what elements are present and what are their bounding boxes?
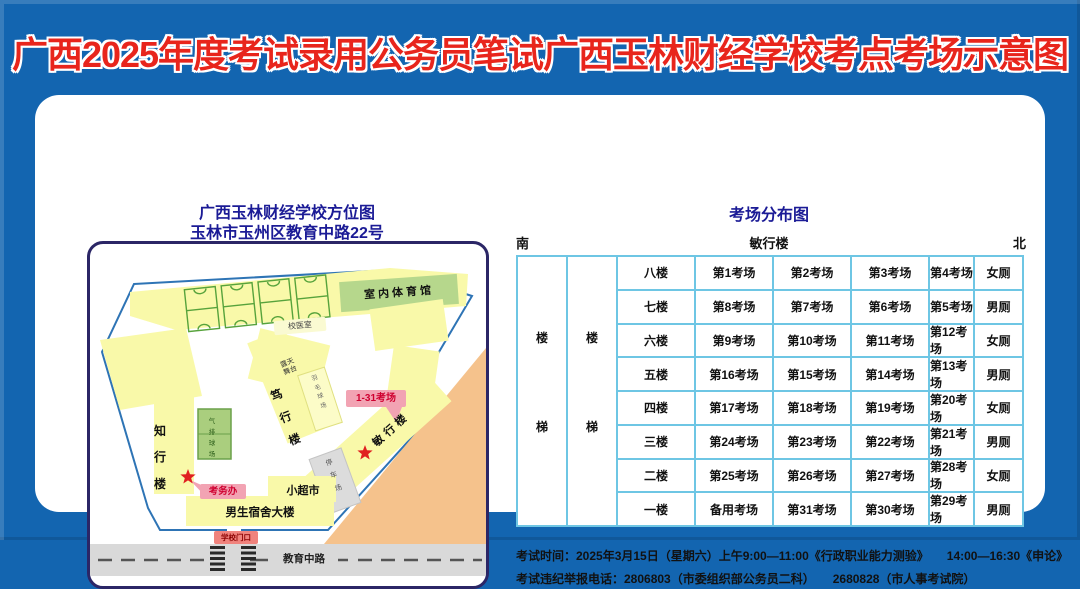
room-cell: 第16考场: [694, 356, 772, 390]
room-cell: 第5考场: [928, 289, 973, 323]
toilet-cell: 女厕: [973, 323, 1022, 357]
toilet-cell: 男厕: [973, 491, 1022, 525]
floor-cell: 五楼: [616, 356, 694, 390]
exam-office-label: 考务办: [200, 484, 246, 499]
room-cell: 第22考场: [850, 424, 928, 458]
floor-cell: 一楼: [616, 491, 694, 525]
room-cell: 第15考场: [772, 356, 850, 390]
room-cell: 第14考场: [850, 356, 928, 390]
room-cell: 第13考场: [928, 356, 973, 390]
room-cell: 第11考场: [850, 323, 928, 357]
room-cell: 第1考场: [694, 255, 772, 289]
content-panel: 广西玉林财经学校方位图 玉林市玉州区教育中路22号: [35, 95, 1045, 512]
room-cell: 第17考场: [694, 390, 772, 424]
room-cell: 第18考场: [772, 390, 850, 424]
toilet-cell: 男厕: [973, 424, 1022, 458]
north-label: 北: [1013, 233, 1026, 252]
stair-label-bottom: 梯: [518, 418, 566, 435]
room-cell: 第28考场: [928, 458, 973, 492]
floor-cell: 二楼: [616, 458, 694, 492]
room-cell: 第25考场: [694, 458, 772, 492]
room-cell: 第27考场: [850, 458, 928, 492]
room-cell: 第20考场: [928, 390, 973, 424]
toilet-cell: 女厕: [973, 390, 1022, 424]
toilet-cell: 女厕: [973, 255, 1022, 289]
school-gate-label: 学校门口: [214, 531, 258, 544]
room-cell: 第4考场: [928, 255, 973, 289]
road-name-label: 教育中路: [272, 551, 336, 566]
dorm-label: 男生宿舍大楼: [186, 504, 334, 520]
room-cell: 第12考场: [928, 323, 973, 357]
room-cell: 第24考场: [694, 424, 772, 458]
room-cell: 第19考场: [850, 390, 928, 424]
room-cell: 第2考场: [772, 255, 850, 289]
room-cell: 第31考场: [772, 491, 850, 525]
room-cell: 第8考场: [694, 289, 772, 323]
rooms-table: 八楼 楼 梯 第1考场 第2考场 第3考场 第4考场 女厕 楼 梯 七楼 第8考…: [516, 255, 1024, 527]
room-cell: 第21考场: [928, 424, 973, 458]
stair-label-bottom: 梯: [568, 418, 616, 435]
building-name-label: 敏行楼: [516, 233, 1022, 252]
floor-cell: 四楼: [616, 390, 694, 424]
room-cell: 第23考场: [772, 424, 850, 458]
page-title: 广西2025年度考试录用公务员笔试广西玉林财经学校考点考场示意图: [0, 26, 1080, 78]
rooms-range-label: 1-31考场: [346, 390, 406, 407]
table-title: 考场分布图: [515, 201, 1023, 225]
room-cell: 第10考场: [772, 323, 850, 357]
stair-label-top: 楼: [568, 329, 616, 346]
map-title-line2: 玉林市玉州区教育中路22号: [87, 219, 487, 243]
campus-map: 室内体育馆 校医室 知行楼 气排球场 笃行楼 露天舞台 羽毛球场 敏行楼 1-3…: [87, 241, 489, 589]
floor-cell: 八楼: [616, 255, 694, 289]
floor-cell: 七楼: [616, 289, 694, 323]
room-cell: 备用考场: [694, 491, 772, 525]
toilet-cell: 女厕: [973, 458, 1022, 492]
room-cell: 第26考场: [772, 458, 850, 492]
right-stair-cell: 楼 梯: [566, 255, 616, 525]
room-cell: 第3考场: [850, 255, 928, 289]
floor-cell: 六楼: [616, 323, 694, 357]
left-stair-cell: 楼 梯: [516, 255, 566, 525]
room-cell: 第6考场: [850, 289, 928, 323]
supermarket-label: 小超市: [270, 482, 336, 498]
room-cell: 第30考场: [850, 491, 928, 525]
toilet-cell: 男厕: [973, 356, 1022, 390]
room-cell: 第29考场: [928, 491, 973, 525]
room-cell: 第9考场: [694, 323, 772, 357]
floor-cell: 三楼: [616, 424, 694, 458]
room-cell: 第7考场: [772, 289, 850, 323]
report-phone-line: 考试违纪举报电话：2806803（市委组织部公务员二科） 2680828（市人事…: [516, 570, 1080, 587]
zhixing-building-label: 知行楼: [152, 418, 168, 497]
toilet-cell: 男厕: [973, 289, 1022, 323]
stair-label-top: 楼: [518, 329, 566, 346]
exam-time-line: 考试时间：2025年3月15日（星期六）上午9:00—11:00《行政职业能力测…: [516, 547, 1080, 564]
poster-background: 广西2025年度考试录用公务员笔试广西玉林财经学校考点考场示意图 广西玉林财经学…: [0, 0, 1080, 540]
volleyball-court-label: 气排球场: [206, 416, 218, 460]
direction-row: 南 敏行楼 北: [516, 233, 1022, 249]
